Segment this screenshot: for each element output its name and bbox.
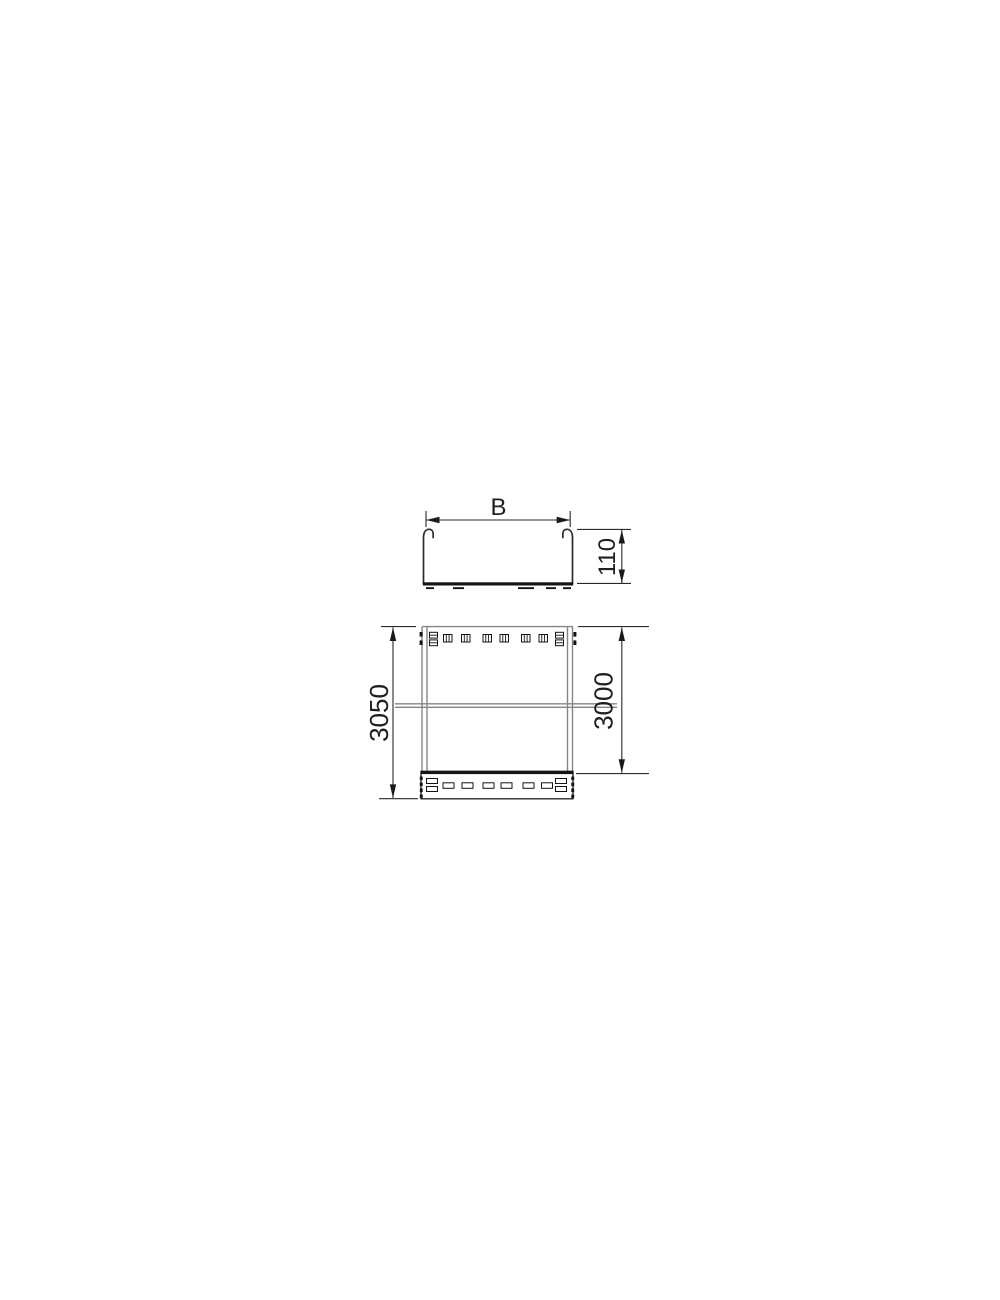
perforation-slot: [556, 779, 567, 784]
weld-seam: [395, 704, 617, 708]
slot-single: [522, 635, 531, 643]
edge-tick: [573, 632, 576, 637]
perforation-slot: [444, 635, 453, 643]
perforation-mark: [453, 587, 464, 589]
perforation-mark: [518, 587, 534, 589]
dimension-label-3000: 3000: [589, 672, 619, 730]
slot-pair-left: [430, 632, 438, 645]
edge-tick: [571, 789, 574, 793]
coupler-end-piece: [420, 771, 574, 799]
slot-single: [500, 635, 509, 643]
section-bottom-plate: [423, 582, 573, 585]
section-bottom-perforations: [426, 587, 571, 589]
dimension-label-b: B: [490, 494, 506, 521]
edge-tick: [420, 783, 423, 787]
plan-view: 3050 3000: [364, 627, 649, 799]
dimension-body-length-3000: 3000: [576, 627, 649, 774]
edge-tick: [420, 795, 423, 799]
slot-single: [539, 635, 548, 643]
slot-single: [483, 635, 492, 643]
dimension-label-3050: 3050: [364, 684, 394, 742]
perforation-slot: [427, 779, 438, 784]
perforation-slot: [556, 787, 567, 792]
perforation-slot: [483, 783, 494, 789]
slot-pair-right: [556, 632, 564, 645]
arrowhead-down: [619, 759, 625, 773]
section-right-sidewall: [563, 529, 573, 584]
dimension-label-110: 110: [594, 538, 621, 576]
technical-drawing-canvas: B 110: [0, 0, 1000, 1300]
perforation-slot: [542, 783, 553, 789]
edge-tick: [571, 777, 574, 781]
perforation-slot: [462, 635, 471, 643]
perforation-slot: [539, 635, 548, 643]
perforation-slot: [462, 783, 473, 789]
perforation-slot: [501, 783, 512, 789]
perforation-slot: [522, 635, 531, 643]
perforation-mark: [546, 587, 556, 589]
perforation-slot: [523, 783, 534, 789]
edge-tick: [420, 632, 423, 637]
coupler-top-thick-edge: [421, 771, 574, 774]
cross-section-view: B 110: [423, 494, 631, 589]
edge-tick: [420, 640, 423, 645]
perforation-mark: [563, 587, 571, 589]
perforation-slot: [483, 635, 492, 643]
edge-tick: [420, 789, 423, 793]
perforation-slot: [443, 783, 454, 789]
arrowhead-up: [619, 627, 625, 641]
arrowhead-up: [390, 627, 396, 641]
perforation-slot: [500, 635, 509, 643]
drawing-page: B 110: [0, 0, 1000, 1300]
dimension-height-110: 110: [577, 529, 631, 583]
edge-tick: [571, 795, 574, 799]
section-left-sidewall: [424, 529, 434, 584]
perforation-mark: [426, 587, 434, 589]
perforation-slot: [427, 787, 438, 792]
slot-single: [444, 635, 453, 643]
plan-side-rails: [422, 627, 573, 772]
arrowhead-down: [390, 784, 396, 798]
arrowhead-left: [426, 517, 440, 524]
edge-tick: [420, 777, 423, 781]
dimension-width-b: B: [426, 494, 570, 527]
edge-tick: [571, 783, 574, 787]
edge-tick: [573, 640, 576, 645]
arrowhead-right: [557, 517, 571, 524]
slot-single: [462, 635, 471, 643]
dimension-total-length-3050: 3050: [364, 627, 418, 799]
plan-end-perforations: [420, 632, 577, 646]
